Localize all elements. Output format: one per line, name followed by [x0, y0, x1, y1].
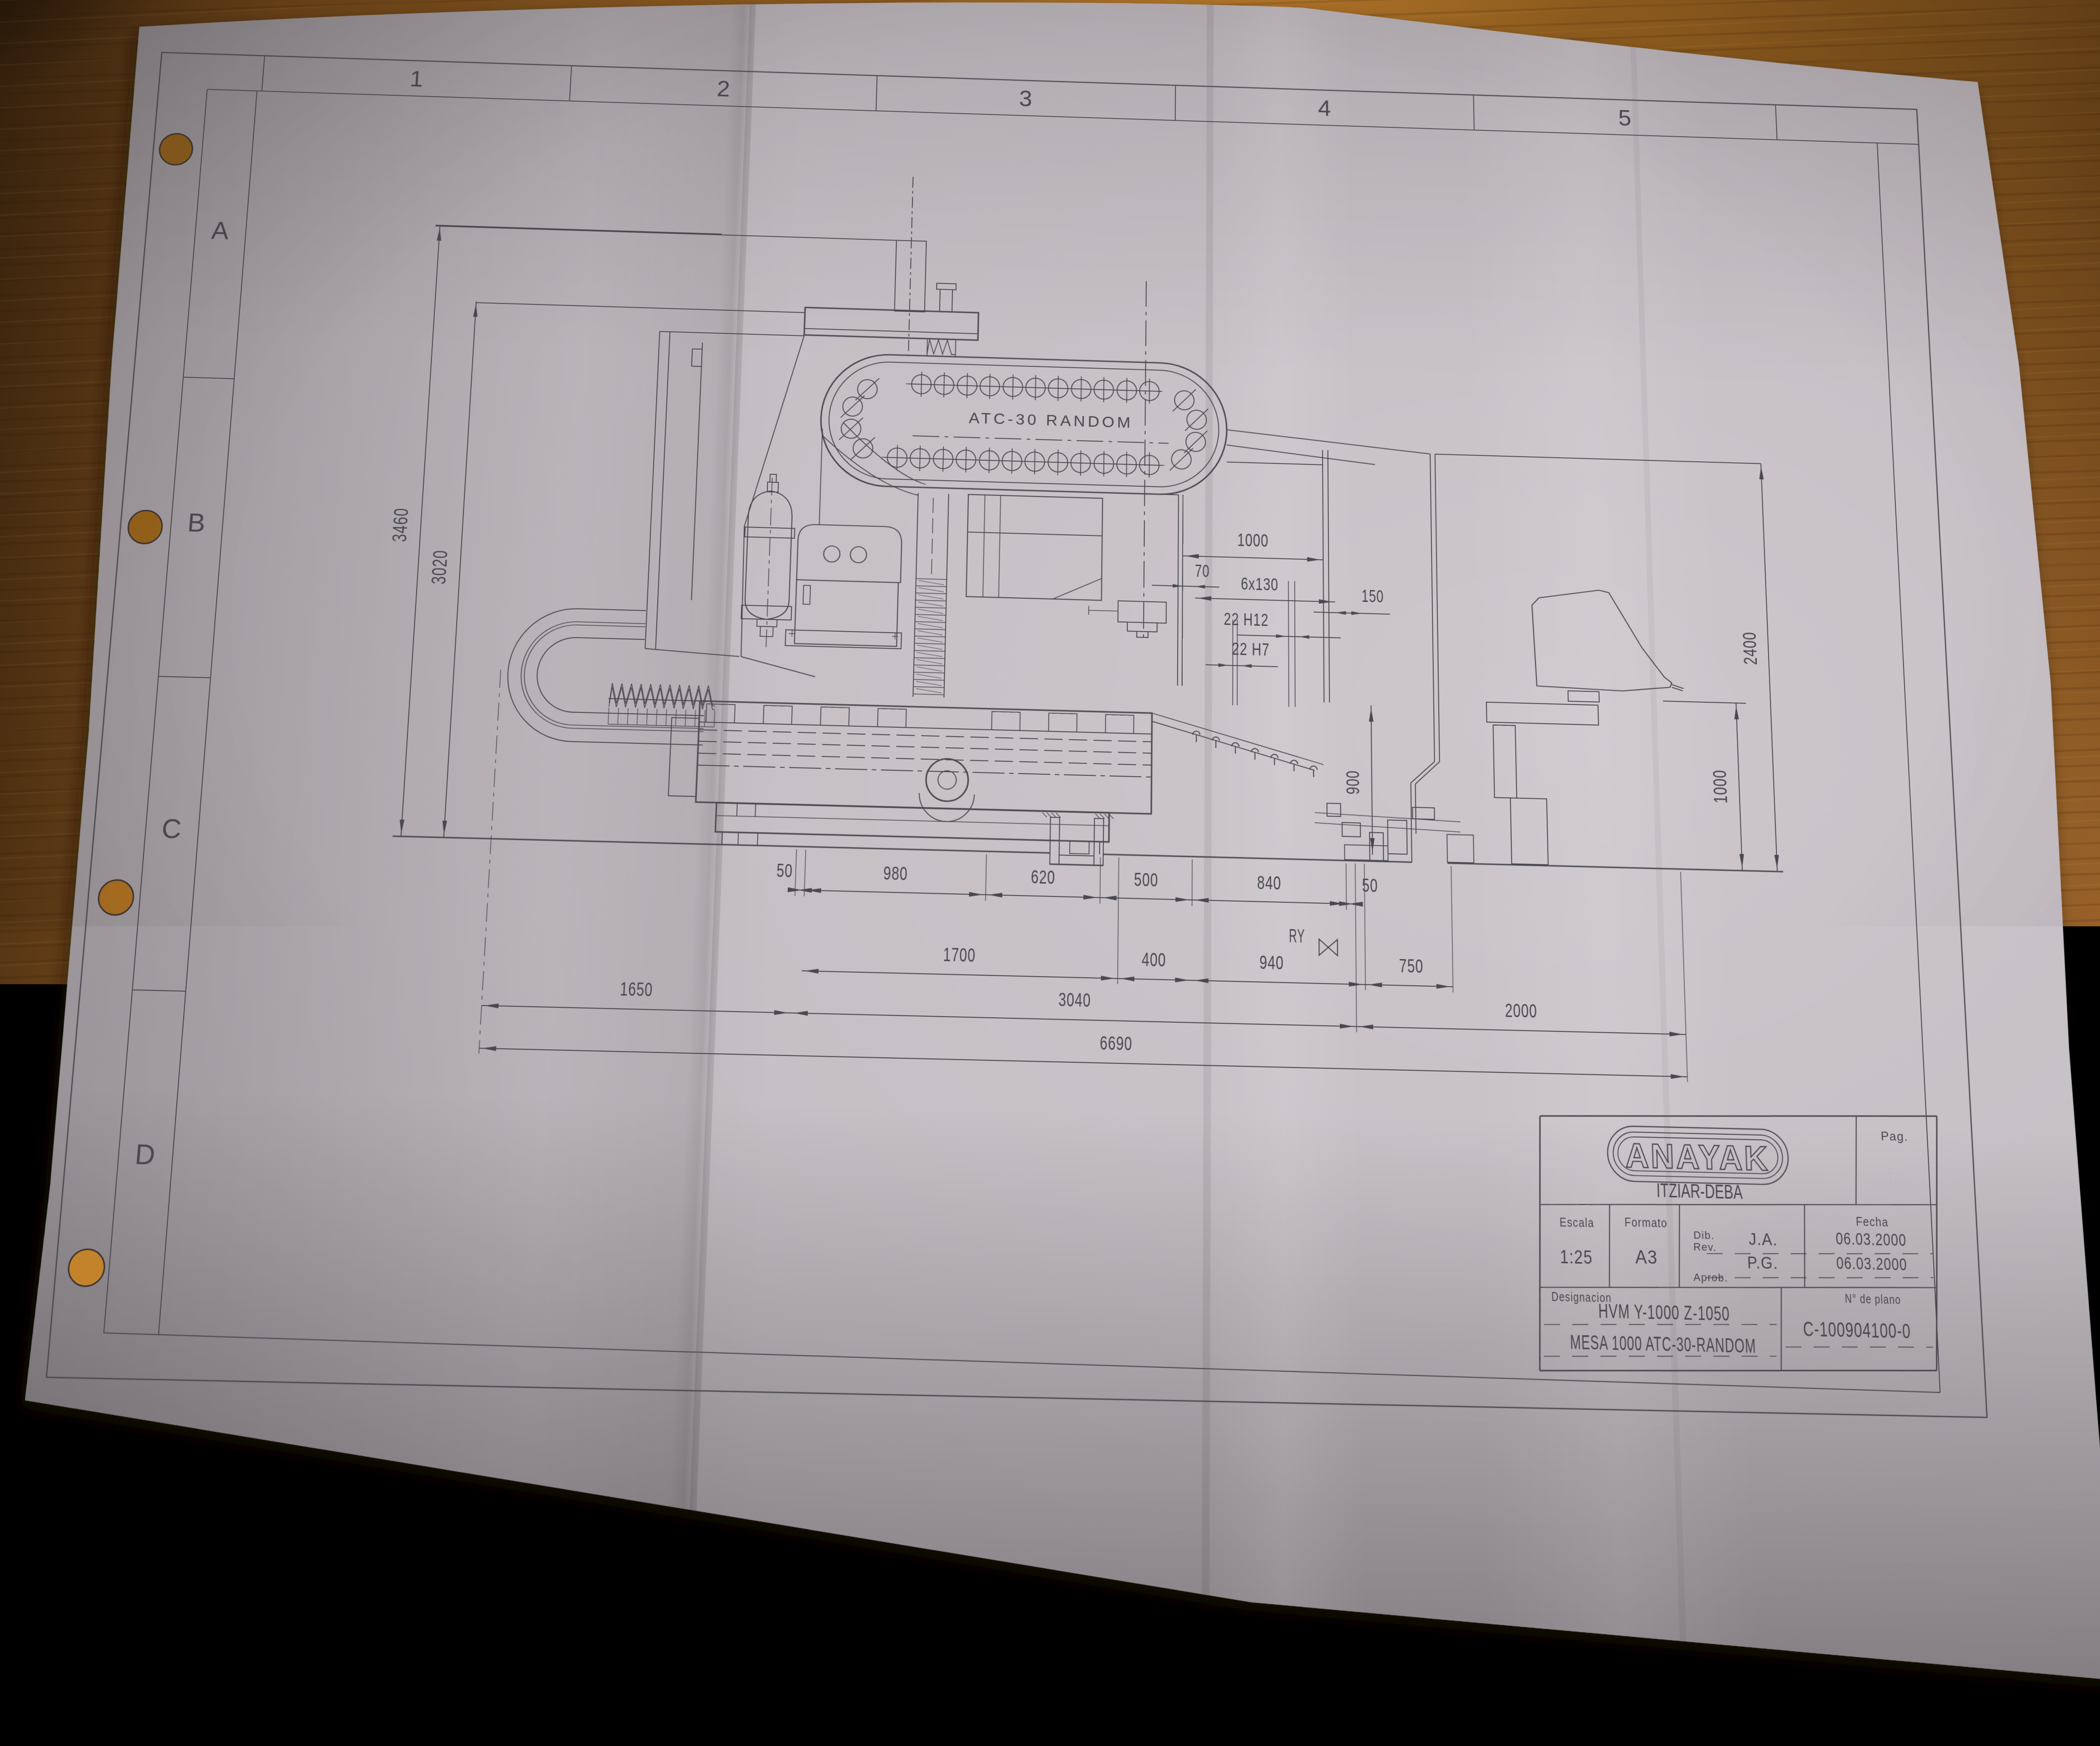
svg-text:940: 940 [1260, 952, 1284, 973]
svg-text:C: C [160, 814, 183, 845]
svg-text:2: 2 [716, 76, 731, 101]
svg-text:5: 5 [1618, 105, 1632, 130]
svg-text:900: 900 [1343, 770, 1363, 794]
svg-text:400: 400 [1142, 949, 1166, 971]
svg-text:Formato: Formato [1624, 1216, 1668, 1231]
svg-text:Pag.: Pag. [1880, 1129, 1909, 1144]
svg-text:1650: 1650 [620, 978, 654, 1000]
svg-text:6x130: 6x130 [1241, 574, 1279, 594]
svg-text:06.03.2000: 06.03.2000 [1835, 1229, 1907, 1250]
svg-text:Escala: Escala [1560, 1216, 1595, 1231]
svg-text:750: 750 [1399, 955, 1424, 977]
svg-text:4: 4 [1318, 95, 1332, 121]
svg-text:3020: 3020 [427, 550, 452, 585]
svg-text:Dib.: Dib. [1693, 1229, 1715, 1241]
svg-text:Rev.: Rev. [1693, 1241, 1717, 1253]
svg-text:840: 840 [1257, 872, 1281, 894]
svg-text:50: 50 [776, 860, 793, 881]
svg-text:3040: 3040 [1058, 989, 1091, 1011]
svg-text:3: 3 [1019, 86, 1033, 111]
svg-text:150: 150 [1361, 587, 1384, 606]
svg-text:22 H12: 22 H12 [1224, 609, 1269, 630]
svg-text:A3: A3 [1635, 1246, 1658, 1268]
svg-text:1000: 1000 [1237, 530, 1269, 551]
svg-text:2400: 2400 [1739, 631, 1761, 665]
svg-text:1700: 1700 [943, 944, 976, 966]
svg-text:620: 620 [1031, 866, 1055, 888]
svg-text:C-100904100-0: C-100904100-0 [1802, 1318, 1911, 1343]
svg-text:1: 1 [409, 66, 425, 92]
svg-text:HVM Y-1000 Z-1050: HVM Y-1000 Z-1050 [1598, 1300, 1730, 1325]
svg-text:06.03.2000: 06.03.2000 [1836, 1253, 1907, 1274]
svg-text:70: 70 [1195, 561, 1210, 581]
svg-text:500: 500 [1134, 869, 1158, 891]
svg-text:N° de plano: N° de plano [1844, 1292, 1901, 1307]
svg-text:1000: 1000 [1709, 769, 1731, 803]
svg-text:1:25: 1:25 [1560, 1246, 1593, 1268]
svg-text:ITZIAR-DEBA: ITZIAR-DEBA [1656, 1179, 1743, 1203]
svg-text:Fecha: Fecha [1856, 1215, 1889, 1230]
svg-text:ANAYAK: ANAYAK [1625, 1136, 1770, 1178]
svg-text:D: D [134, 1138, 157, 1171]
svg-text:980: 980 [883, 863, 908, 884]
svg-text:A: A [211, 216, 231, 245]
svg-text:RY: RY [1289, 925, 1305, 947]
svg-text:MESA 1000 ATC-30-RANDOM: MESA 1000 ATC-30-RANDOM [1570, 1331, 1757, 1357]
svg-text:3460: 3460 [388, 507, 413, 542]
svg-text:6690: 6690 [1100, 1032, 1132, 1055]
svg-text:J.A.: J.A. [1748, 1229, 1778, 1250]
svg-text:B: B [186, 508, 207, 538]
svg-text:P.G.: P.G. [1747, 1252, 1778, 1273]
svg-text:2000: 2000 [1505, 999, 1538, 1021]
